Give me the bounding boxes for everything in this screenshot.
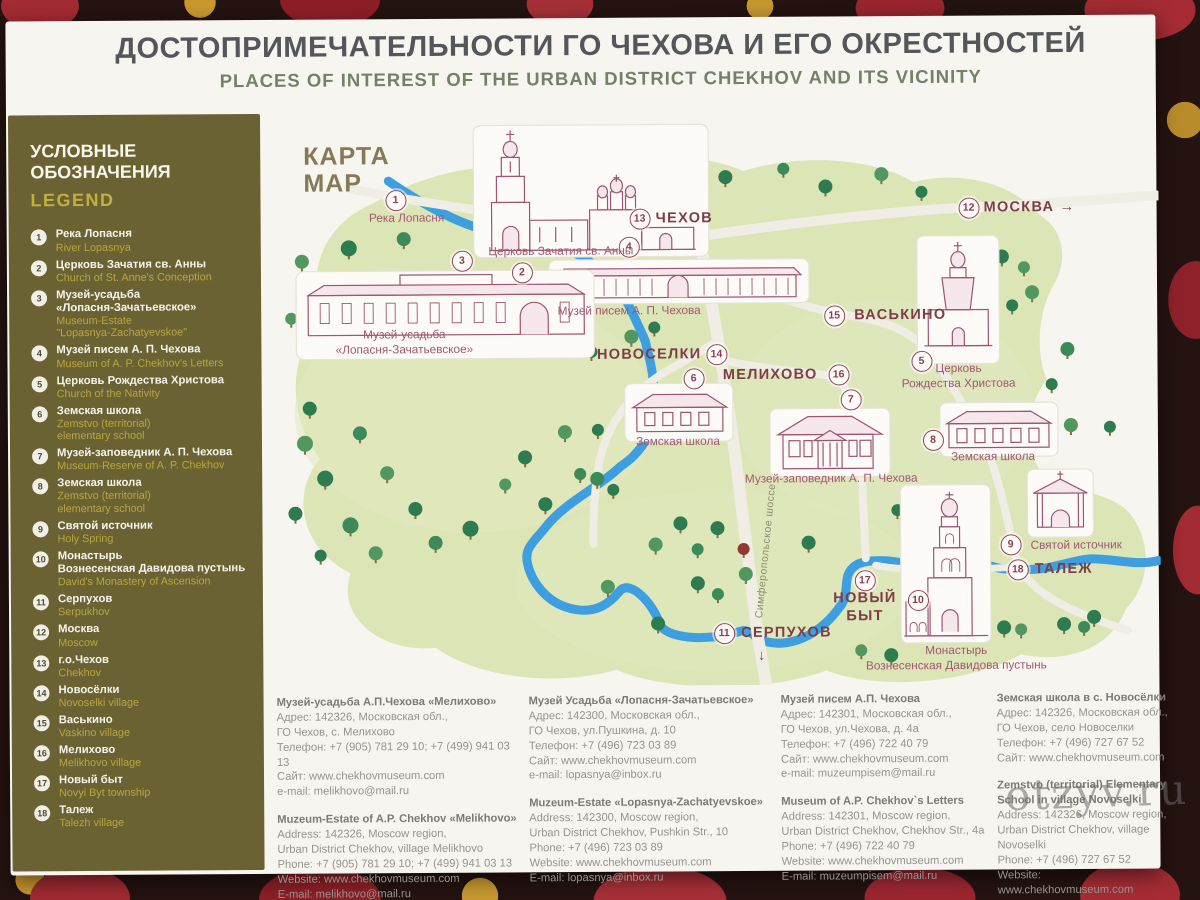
legend-item: 5 Церковь Рождества Христова Church of t… [32, 374, 246, 401]
legend-item: 11 Серпухов Serpukhov [33, 592, 247, 619]
header: ДОСТОПРИМЕЧАТЕЛЬНОСТИ ГО ЧЕХОВА И ЕГО ОК… [75, 27, 1125, 93]
legend-item-ru: Новосёлки [58, 683, 139, 697]
contact-en-title: Museum of A.P. Chekhov`s Letters [781, 794, 993, 810]
legend-item-ru: Музей-усадьба «Лопасня-Зачатьевское» [56, 288, 196, 315]
legend-item-en: Church of the Nativity [57, 387, 224, 401]
legend-item-en: Talezh village [59, 817, 124, 830]
contact-en-lines: Address: 142301, Moscow region, Urban Di… [781, 809, 993, 885]
contact-en-lines: Address: 142300, Moscow region, Urban Di… [529, 810, 775, 886]
legend-item: 10 Монастырь Вознесенская Давидова пусты… [33, 549, 247, 589]
legend-heading-en: LEGEND [30, 190, 244, 212]
contact-ru-title: Земская школа в с. Новосёлки [997, 690, 1169, 706]
map-marker-10: 10 [907, 589, 928, 610]
map-marker-3: 3 [451, 250, 472, 271]
page-title: ДОСТОПРИМЕЧАТЕЛЬНОСТИ ГО ЧЕХОВА И ЕГО ОК… [75, 27, 1125, 66]
legend-item-number: 13 [33, 655, 49, 671]
legend-item-en: Serpukhov [58, 606, 113, 619]
legend-item-ru: Земская школа [57, 477, 151, 491]
legend-item: 15 Васькино Vaskino village [34, 713, 248, 740]
map-label: ВАСЬКИНО [854, 306, 946, 325]
map-label: НОВОСЕЛКИ [597, 345, 702, 364]
legend-item: 8 Земская школа Zemstvo (territorial) el… [32, 476, 246, 515]
legend-item-number: 16 [34, 745, 50, 761]
contact-ru-lines: Адрес: 142326, Московская обл., ГО Чехов… [997, 705, 1169, 766]
map-label: ЧЕХОВ [656, 209, 714, 227]
legend-item: 7 Музей-заповедник А. П. Чехова Museum-R… [32, 446, 246, 473]
legend-item-ru: Серпухов [58, 593, 113, 606]
map-marker-13: 13 [629, 208, 650, 229]
legend-item-ru: Новый быт [59, 774, 150, 788]
map-marker-15: 15 [824, 305, 845, 326]
contact-column: Музей писем А.П. Чехова Адрес: 142301, М… [781, 692, 994, 898]
legend-items: 1 Река Лопасня River Lopasnya 2 Церковь … [31, 228, 249, 830]
photo-background: ДОСТОПРИМЕЧАТЕЛЬНОСТИ ГО ЧЕХОВА И ЕГО ОК… [0, 0, 1200, 900]
map-label: Монастырь Вознесенская Давидова пустынь [866, 642, 1047, 673]
legend-item-en: Chekhov [58, 667, 109, 680]
legend-item: 3 Музей-усадьба «Лопасня-Зачатьевское» M… [31, 288, 245, 341]
map-label: ТАЛЕЖ [1035, 560, 1093, 578]
map-marker-14: 14 [706, 344, 727, 365]
legend-item: 16 Мелихово Melikhovo village [34, 743, 248, 770]
map-marker-2: 2 [511, 262, 532, 283]
brochure-sheet: ДОСТОПРИМЕЧАТЕЛЬНОСТИ ГО ЧЕХОВА И ЕГО ОК… [5, 14, 1160, 875]
map-label: Церковь Зачатия св. Анны [488, 243, 633, 259]
legend-item-en: Museum-Estate "Lopasnya-Zachatyevskoe" [56, 314, 196, 340]
legend-item-number: 6 [32, 406, 48, 422]
contact-en-title: Muzeum-Estate of A.P. Chekhov «Melikhovo… [277, 812, 523, 828]
legend-item: 18 Талеж Talezh village [34, 803, 248, 830]
legend-item: 1 Река Лопасня River Lopasnya [31, 228, 245, 255]
legend-item-ru: Церковь Зачатия св. Анны [56, 258, 212, 272]
contact-en-lines: Address: 142326, Moscow region, Urban Di… [277, 826, 523, 900]
legend-item-ru: Музей-заповедник А. П. Чехова [57, 446, 232, 460]
map-marker-6: 6 [683, 368, 704, 389]
legend-item: 9 Святой источник Holy Spring [32, 519, 246, 546]
legend-item-en: Church of St. Anne's Conception [56, 271, 212, 284]
map-label: ↓ [758, 647, 767, 665]
contact-en-title: Muzeum-Estate «Lopasnya-Zachatyevskoe» [529, 795, 775, 811]
legend-item-number: 17 [34, 775, 50, 791]
legend-item-en: River Lopasnya [56, 241, 132, 254]
map-label: Музей писем А. П. Чехова [558, 303, 701, 319]
map-label: Симферопольское шоссе [753, 483, 778, 619]
legend-item-number: 3 [31, 290, 47, 306]
legend-item-number: 2 [31, 260, 47, 276]
legend-item-number: 1 [31, 230, 47, 246]
map-marker-9: 9 [1000, 534, 1021, 555]
contact-ru-title: Музей писем А.П. Чехова [781, 692, 993, 708]
contact-ru-title: Музей-усадьба А.П.Чехова «Мелихово» [277, 694, 523, 710]
watermark: otzyv.ru [1004, 765, 1189, 820]
legend-item-ru: г.о.Чехов [58, 653, 109, 666]
map-marker-7: 7 [840, 389, 861, 410]
legend-item-ru: Святой источник [57, 520, 152, 534]
legend-item-en: David's Monastery of Ascension [58, 575, 245, 589]
map-label: НОВЫЙ БЫТ [833, 589, 897, 626]
map-label: Музей-усадьба «Лопасня-Зачатьевское» [336, 327, 474, 357]
legend-item-ru: Мелихово [59, 744, 141, 758]
map-overlay: КАРТАMAP 123456789101112131415161718Река… [263, 108, 1161, 687]
legend-item-number: 12 [33, 625, 49, 641]
legend-item: 14 Новосёлки Novoselki village [33, 683, 247, 710]
map-title-en: MAP [303, 169, 362, 197]
legend-item-ru: Земская школа [57, 404, 151, 418]
contact-ru-lines: Адрес: 142326, Московская обл., ГО Чехов… [277, 709, 524, 800]
legend-item-ru: Монастырь Вознесенская Давидова пустынь [58, 549, 246, 576]
legend-item-ru: Музей писем А. П. Чехова [56, 344, 223, 358]
map-label: Река Лопасня [369, 210, 444, 225]
legend-item: 13 г.о.Чехов Chekhov [33, 653, 247, 680]
legend-item-en: Zemstvo (territorial) elementary school [57, 417, 151, 443]
legend-item-en: Novoselki village [59, 696, 139, 709]
legend-item-en: Zemstvo (territorial) elementary school [57, 490, 151, 516]
legend-panel: УСЛОВНЫЕ ОБОЗНАЧЕНИЯ LEGEND 1 Река Лопас… [8, 114, 265, 872]
map-label: Церковь Рождества Христова [902, 361, 1016, 391]
contact-column: Музей Усадьба «Лопасня-Зачатьевское» Адр… [529, 693, 776, 899]
legend-item-ru: Васькино [59, 714, 130, 728]
legend-item-number: 7 [32, 449, 48, 465]
legend-item: 4 Музей писем А. П. Чехова Museum of A. … [31, 343, 245, 370]
legend-item-number: 15 [34, 715, 50, 731]
legend-item-ru: Талеж [59, 804, 124, 817]
legend-item-en: Vaskino village [59, 727, 130, 740]
legend-item-number: 4 [31, 346, 47, 362]
contact-ru-lines: Адрес: 142301, Московская обл., ГО Чехов… [781, 706, 993, 782]
map-marker-18: 18 [1007, 559, 1028, 580]
map-marker-12: 12 [958, 197, 979, 218]
map-area: КАРТАMAP 123456789101112131415161718Река… [263, 108, 1161, 687]
map-label: Земская школа [636, 434, 720, 449]
legend-item-ru: Река Лопасня [56, 228, 132, 242]
legend-item-en: Holy Spring [58, 533, 153, 546]
legend-item-number: 8 [32, 479, 48, 495]
contact-en-lines: Address: 142326, Moscow region, Urban Di… [997, 808, 1170, 898]
legend-item-en: Museum of A. P. Chekhov's Letters [56, 357, 223, 371]
legend-item: 12 Москва Moscow [33, 622, 247, 649]
map-marker-17: 17 [854, 570, 875, 591]
legend-item-en: Moscow [58, 636, 99, 649]
legend-item-en: Melikhovo village [59, 757, 141, 770]
legend-item-en: Museum-Reserve of A. P. Chekhov [57, 459, 232, 473]
legend-item-ru: Церковь Рождества Христова [57, 374, 224, 388]
map-marker-8: 8 [922, 429, 943, 450]
legend-item: 6 Земская школа Zemstvo (territorial) el… [32, 404, 246, 443]
contact-ru-title: Музей Усадьба «Лопасня-Зачатьевское» [529, 693, 775, 709]
map-marker-1: 1 [385, 190, 406, 211]
map-title: КАРТАMAP [303, 143, 390, 198]
legend-heading-ru: УСЛОВНЫЕ ОБОЗНАЧЕНИЯ [30, 140, 244, 184]
map-marker-16: 16 [828, 364, 849, 385]
legend-item-number: 11 [33, 595, 49, 611]
map-title-ru: КАРТА [303, 142, 390, 171]
legend-item: 17 Новый быт Novyi Byt township [34, 773, 248, 800]
map-label: МОСКВА → [984, 198, 1076, 217]
map-label: МЕЛИХОВО [723, 366, 818, 385]
contact-column: Музей-усадьба А.П.Чехова «Мелихово» Адре… [277, 694, 524, 900]
map-label: СЕРПУХОВ [741, 623, 832, 642]
legend-item-en: Novyi Byt township [59, 787, 150, 800]
legend-item-number: 5 [32, 376, 48, 392]
legend-item-number: 18 [34, 805, 50, 821]
legend-item-number: 9 [32, 521, 48, 537]
map-marker-11: 11 [714, 623, 735, 644]
map-label: Святой источник [1031, 537, 1122, 552]
map-label: Земская школа [951, 449, 1035, 464]
page-subtitle: PLACES OF INTEREST OF THE URBAN DISTRICT… [76, 65, 1126, 93]
contact-ru-lines: Адрес: 142300, Московская обл., ГО Чехов… [529, 708, 775, 784]
legend-item-number: 10 [33, 551, 49, 567]
legend-item: 2 Церковь Зачатия св. Анны Church of St.… [31, 258, 245, 285]
legend-item-number: 14 [33, 685, 49, 701]
legend-item-ru: Москва [58, 623, 99, 636]
